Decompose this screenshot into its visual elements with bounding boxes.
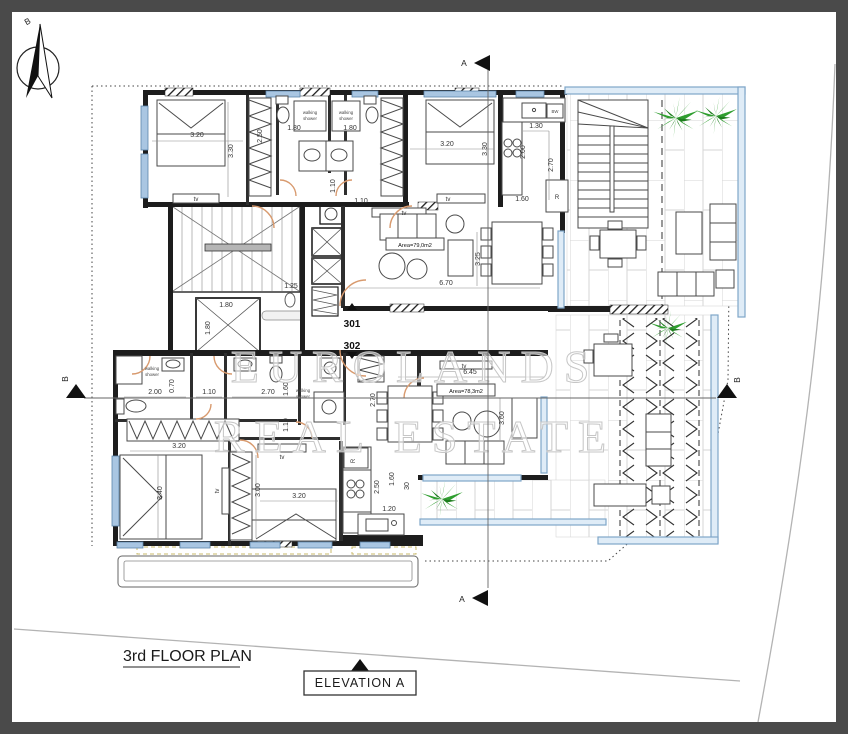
elevation-arrow-icon [351,659,369,671]
section-a-arrow-icon [474,55,490,71]
tv-label: tv [215,489,221,494]
section-b-arrow-icon [717,384,737,398]
stair-handrail [205,244,271,251]
dim-label: 3.25 [475,252,482,266]
bedroom-3 [120,455,229,539]
fridge-label: R [555,195,560,201]
dim-label: 1.60 [389,472,396,486]
dim-label: 1.60 [515,196,529,203]
dim-label: 1.80 [287,125,301,132]
section-b-label: B [60,376,70,382]
dim-label: 1.10 [354,198,368,205]
walking-shower-label: shower [339,116,353,121]
dim-label: 2.70 [548,158,555,172]
dim-label: 3.20 [190,132,204,139]
floor-plan-sheet: B [0,0,848,734]
tv-label: tv [402,211,407,217]
dim-label: 2.70 [370,393,377,407]
walking-shower-label: walking [339,110,354,115]
dim-label: 1.80 [219,302,233,309]
tv-label: tv [194,197,199,203]
dim-label: 2.50 [257,129,264,143]
floor-plan-canvas: B [12,12,836,722]
watermark-line2: REAL ESTATE [214,411,616,462]
entry-label-pill [262,311,304,320]
walking-shower-label: shower [303,116,317,121]
dim-label: 3.20 [292,493,306,500]
dim-label: 1.80 [205,321,212,335]
dim-label: 3.30 [228,144,235,158]
bedroom-1 [157,100,225,203]
section-b-arrow-icon [66,384,86,398]
north-label: B [23,15,33,27]
dim-label: 3.20 [440,141,454,148]
dim-label: 1.25 [284,283,298,290]
dim-label: 6.70 [439,280,453,287]
dim-label: 0.70 [169,379,176,393]
tv-label: tv [446,197,451,203]
north-arrow: B [17,15,59,98]
elevator-shafts [312,228,342,284]
section-a-arrow-icon [472,590,488,606]
dim-label: 1.20 [382,506,396,513]
dim-label: 30 [404,482,411,490]
walking-shower-label: shower [145,372,159,377]
section-a-label: A [459,594,465,604]
dim-label: 1.30 [529,123,543,130]
elevation-label: ELEVATION A [315,676,405,690]
walking-shower-label: walking [303,110,318,115]
dishwasher-label: BW [552,109,560,114]
dim-label: 3.00 [255,483,262,497]
dim-label: 2.00 [148,389,162,396]
building-core [172,204,342,352]
terrace-301 [567,94,738,306]
page-title: 3rd FLOOR PLAN [123,648,252,665]
walking-shower-label: walking [145,366,160,371]
dim-label: 3.40 [157,486,164,500]
service-shaft [312,287,338,316]
outdoor-stair [578,100,648,228]
bathrooms-top [276,96,378,171]
dim-label: 1.10 [202,389,216,396]
dim-label: 1.80 [343,125,357,132]
watermark-line1: EUROLANDS [231,341,600,392]
section-a-label: A [461,58,467,68]
area-label-301: Area=79,0m2 [398,243,432,249]
dim-label: 1.10 [330,179,337,193]
dim-label: 2.00 [520,145,527,159]
wc-lobby [285,293,295,307]
dim-label: 2.50 [374,480,381,494]
dim-label: 3.20 [172,443,186,450]
section-b-label: B [732,377,742,383]
unit-number-301: 301 [344,319,361,330]
